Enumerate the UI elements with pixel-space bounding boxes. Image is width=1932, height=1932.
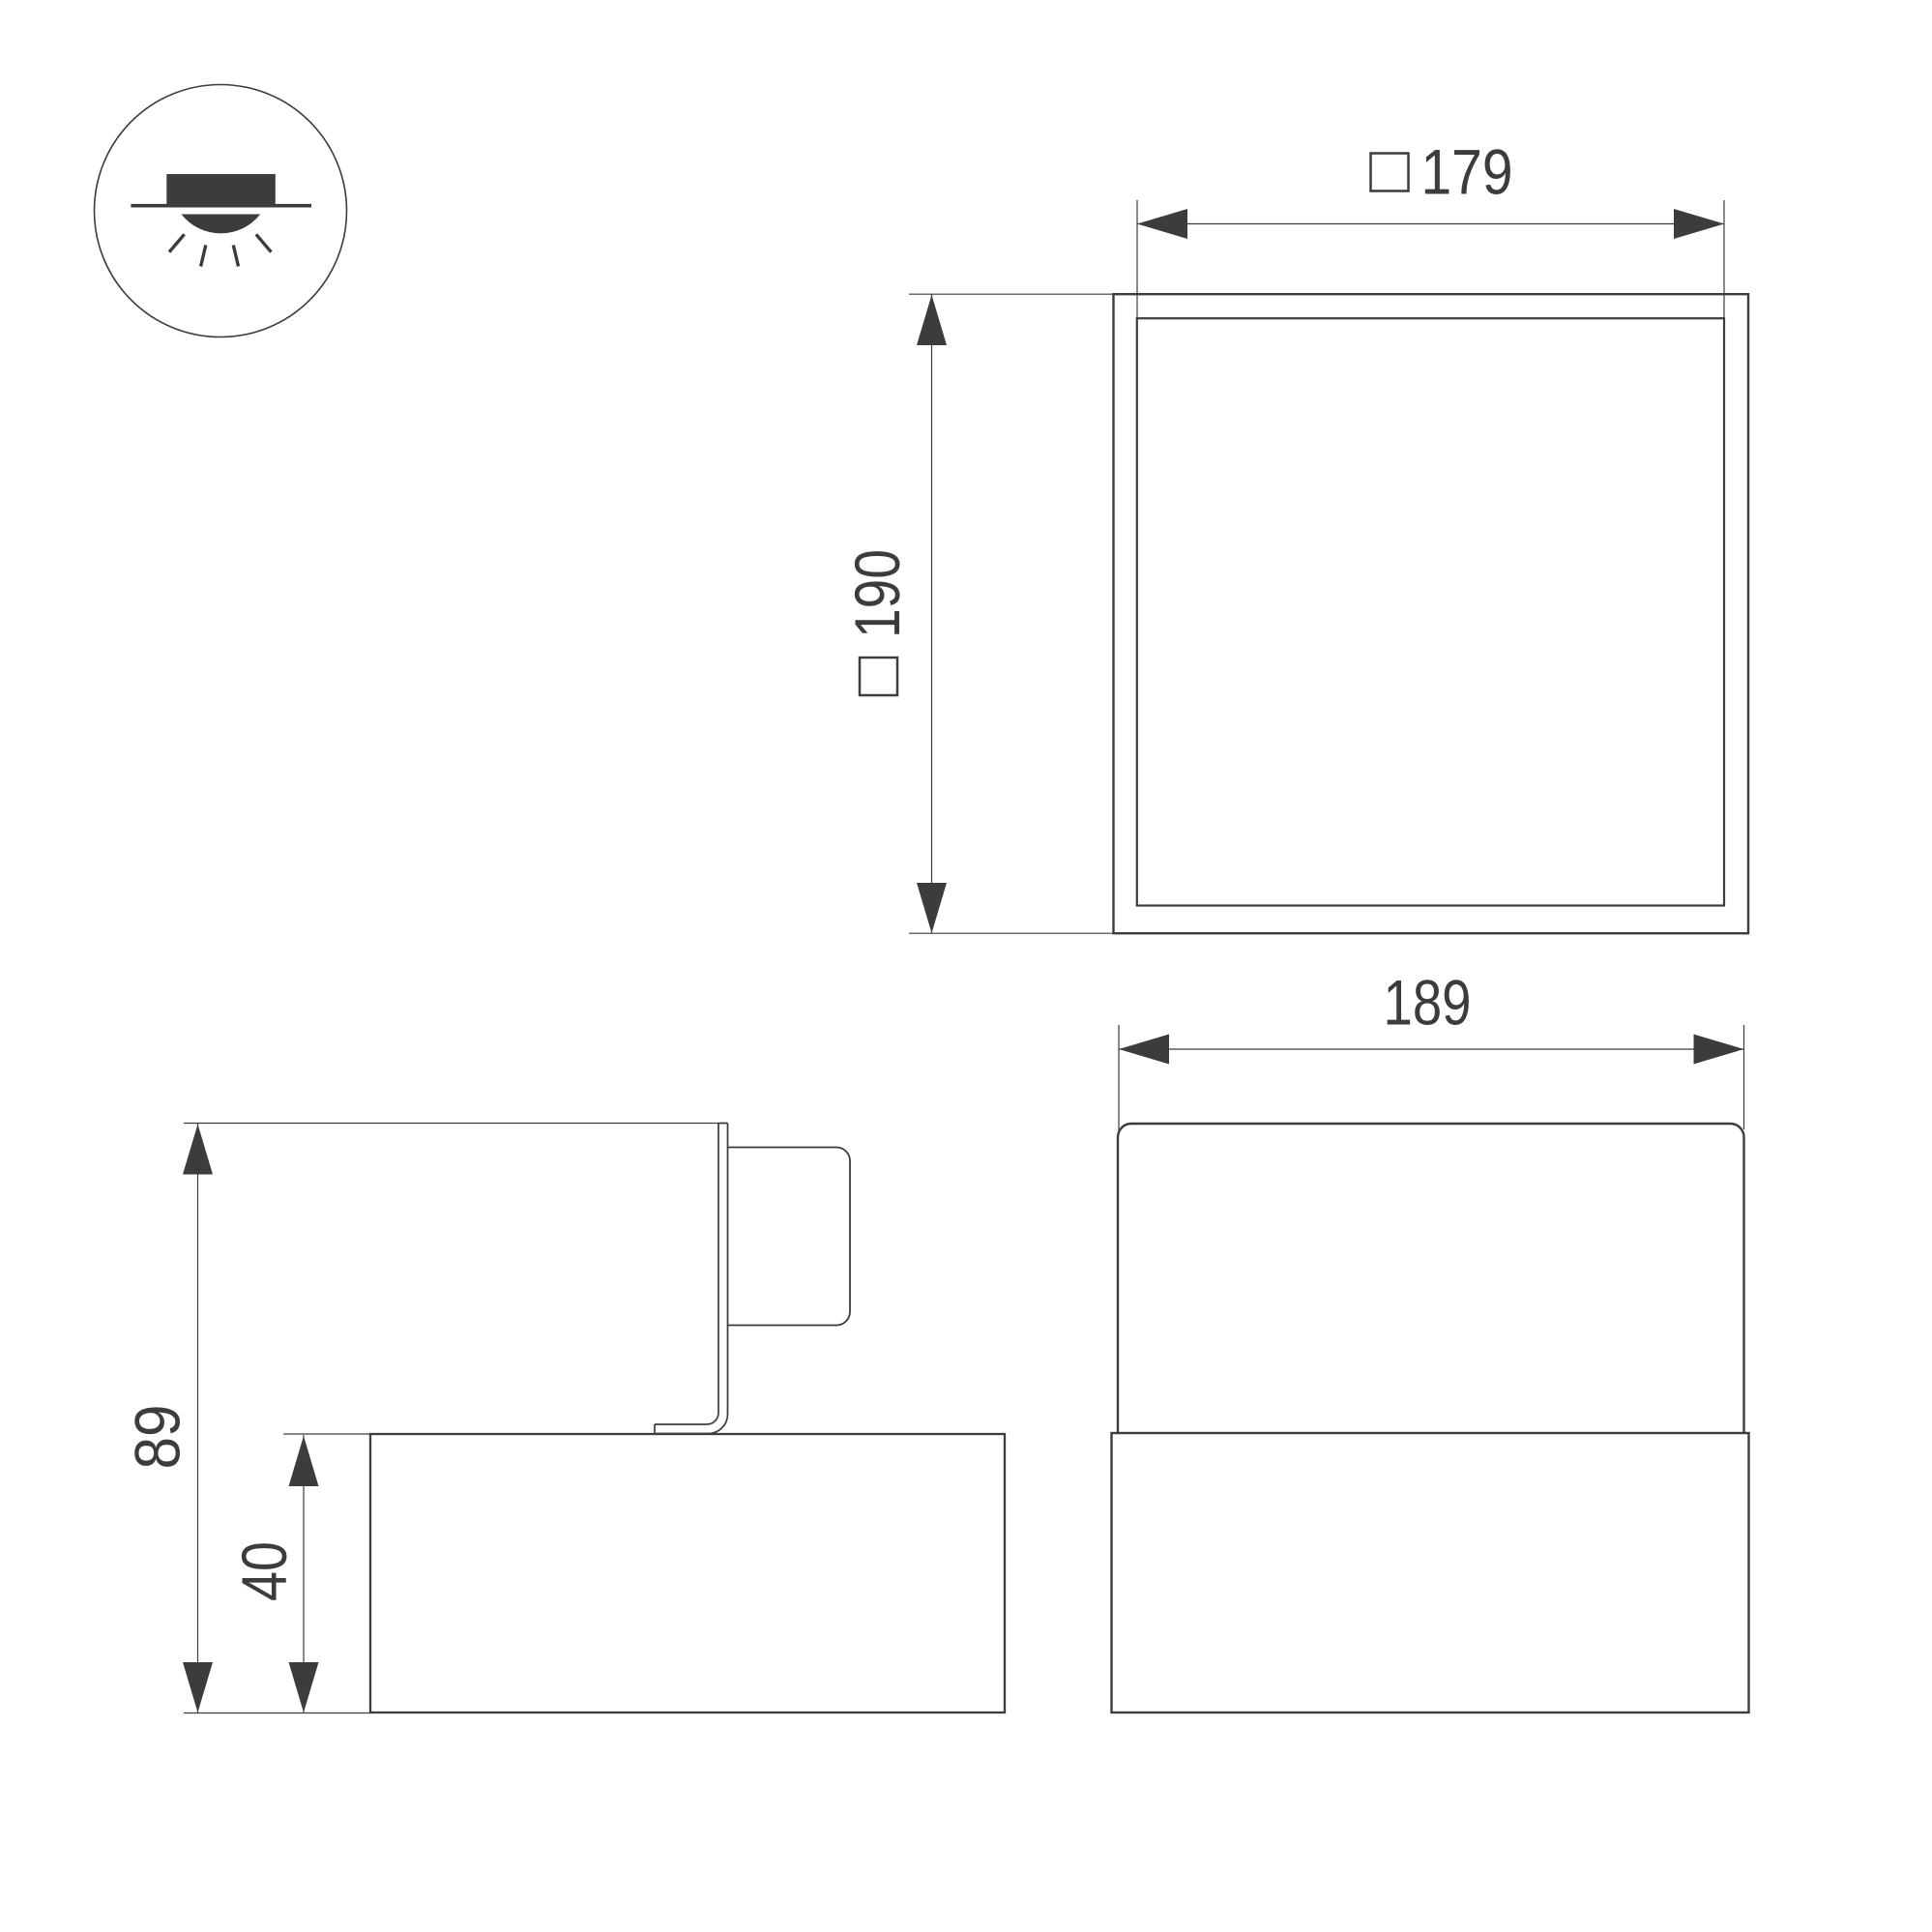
svg-text:40: 40 <box>228 1541 300 1601</box>
svg-text:190: 190 <box>841 549 913 638</box>
svg-text:179: 179 <box>1421 136 1513 208</box>
svg-text:189: 189 <box>1384 967 1472 1039</box>
svg-text:89: 89 <box>122 1405 193 1470</box>
